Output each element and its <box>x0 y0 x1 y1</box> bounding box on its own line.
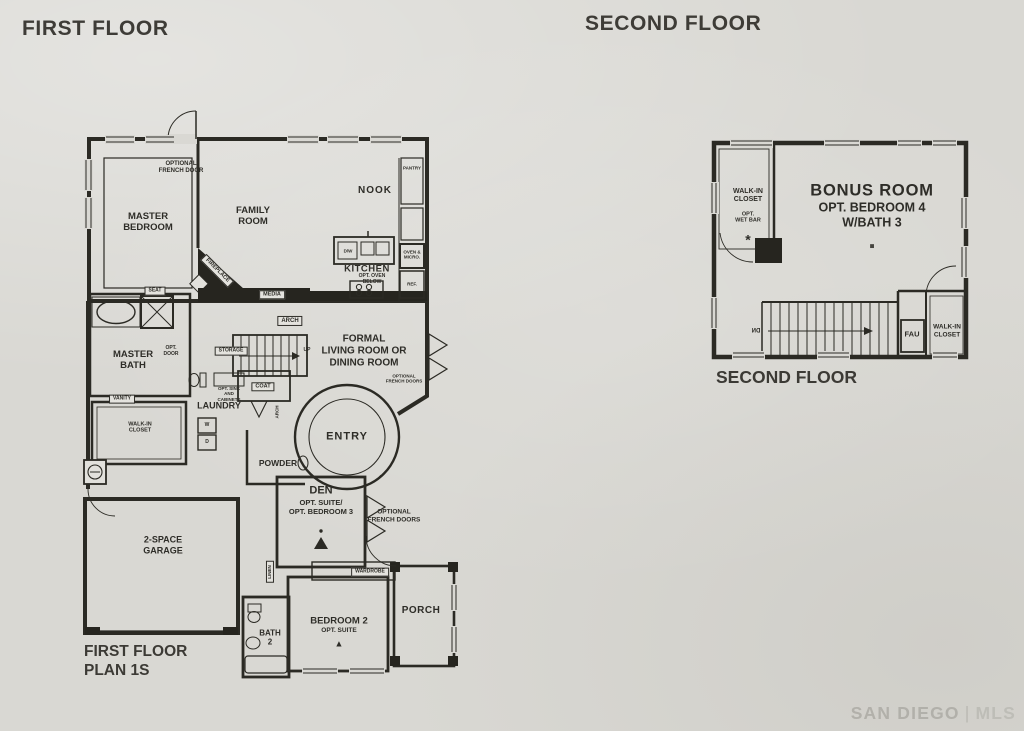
bath-2-label: BATH 2 <box>259 629 281 648</box>
second-floor-windows <box>710 139 970 360</box>
wic-wet-bar-subtitle-label: OPT. WET BAR <box>735 212 761 225</box>
second-floor-heading: SECOND FLOOR <box>585 12 761 36</box>
wic-wet-bar-title-label: WALK-IN CLOSET <box>733 188 763 205</box>
fau-label: FAU <box>905 331 920 340</box>
second-floor-caption: SECOND FLOOR <box>716 367 857 388</box>
den-subtitle-label: OPT. SUITE/ OPT. BEDROOM 3 <box>289 499 353 517</box>
second-walk-in-closet-label: WALK-IN CLOSET <box>933 323 961 338</box>
mls-watermark: SAN DIEGO | MLS <box>851 703 1016 724</box>
floor-plan-drawing <box>0 0 1024 731</box>
second-floor-walls <box>714 143 966 357</box>
floor-plan-photo: FIRST FLOOR SECOND FLOOR FIRST FLOOR PLA… <box>0 0 1024 731</box>
entry-label: ENTRY <box>326 431 368 444</box>
master-bedroom-label: MASTER BEDROOM <box>123 211 173 233</box>
walk-in-closet-label: WALK-IN CLOSET <box>128 422 152 435</box>
up-label: UP <box>304 348 311 354</box>
laundry-label: LAUNDRY <box>197 401 241 412</box>
den-title-label: DEN <box>309 485 332 498</box>
coat-label: COAT <box>251 382 274 391</box>
dryer-label: D <box>205 440 209 446</box>
porch-label: PORCH <box>402 605 441 617</box>
linen-label: LINEN <box>266 561 274 583</box>
oven-micro-label: OVEN & MICRO. <box>403 250 420 261</box>
powder-label: POWDER <box>259 458 297 468</box>
arch-upper-label: ARCH <box>277 316 302 326</box>
optional-french-doors-living-label: OPTIONAL FRENCH DOORS <box>386 374 423 385</box>
opt-oven-below-label: OPT. OVEN BELOW <box>359 274 386 286</box>
bonus-room-marker: ■ <box>870 241 875 250</box>
bonus-room-title-label: BONUS ROOM <box>810 181 934 200</box>
pantry-label: PANTRY <box>403 165 421 170</box>
media-label: MEDIA <box>259 290 285 299</box>
optional-french-door-label: OPTIONAL FRENCH DOOR <box>159 161 204 175</box>
watermark-brand: SAN DIEGO <box>851 703 960 724</box>
watermark-suffix: MLS <box>975 703 1016 724</box>
bedroom-2-marker: ▲ <box>335 639 344 650</box>
wardrobe-label: WARDROBE <box>351 568 389 577</box>
opt-sink-cabinets-label: OPT. SINK AND CABINETS <box>217 386 240 402</box>
family-room-label: FAMILY ROOM <box>236 205 270 227</box>
bedroom-2-subtitle-label: OPT. SUITE <box>321 627 356 635</box>
garage-label: 2-SPACE GARAGE <box>143 534 183 555</box>
first-floor-plan-caption: FIRST FLOOR PLAN 1S <box>84 643 187 681</box>
watermark-separator: | <box>965 703 971 724</box>
opt-door-label: OPT. DOOR <box>164 346 179 358</box>
first-floor-walls <box>84 111 458 677</box>
formal-living-label: FORMAL LIVING ROOM OR DINING ROOM <box>322 333 407 368</box>
arch-entry-label: ARCH <box>274 406 279 419</box>
vanity-label: VANITY <box>109 395 135 404</box>
bonus-room-subtitle-label: OPT. BEDROOM 4 W/BATH 3 <box>819 200 926 230</box>
first-floor-heading: FIRST FLOOR <box>22 17 169 41</box>
ref-label: REF. <box>407 281 417 286</box>
storage-label: STORAGE <box>215 347 248 356</box>
nook-label: NOOK <box>358 185 392 197</box>
bedroom-2-title-label: BEDROOM 2 <box>310 615 368 626</box>
optional-french-doors-den-label: OPTIONAL FRENCH DOORS <box>368 508 421 523</box>
stairs-down-label: DN <box>752 328 761 335</box>
master-bath-label: MASTER BATH <box>113 349 153 371</box>
dishwasher-label: D/W <box>344 248 353 253</box>
washer-label: W <box>205 423 210 429</box>
seat-label: SEAT <box>145 287 166 296</box>
wic-asterisk-marker: * <box>745 232 750 249</box>
